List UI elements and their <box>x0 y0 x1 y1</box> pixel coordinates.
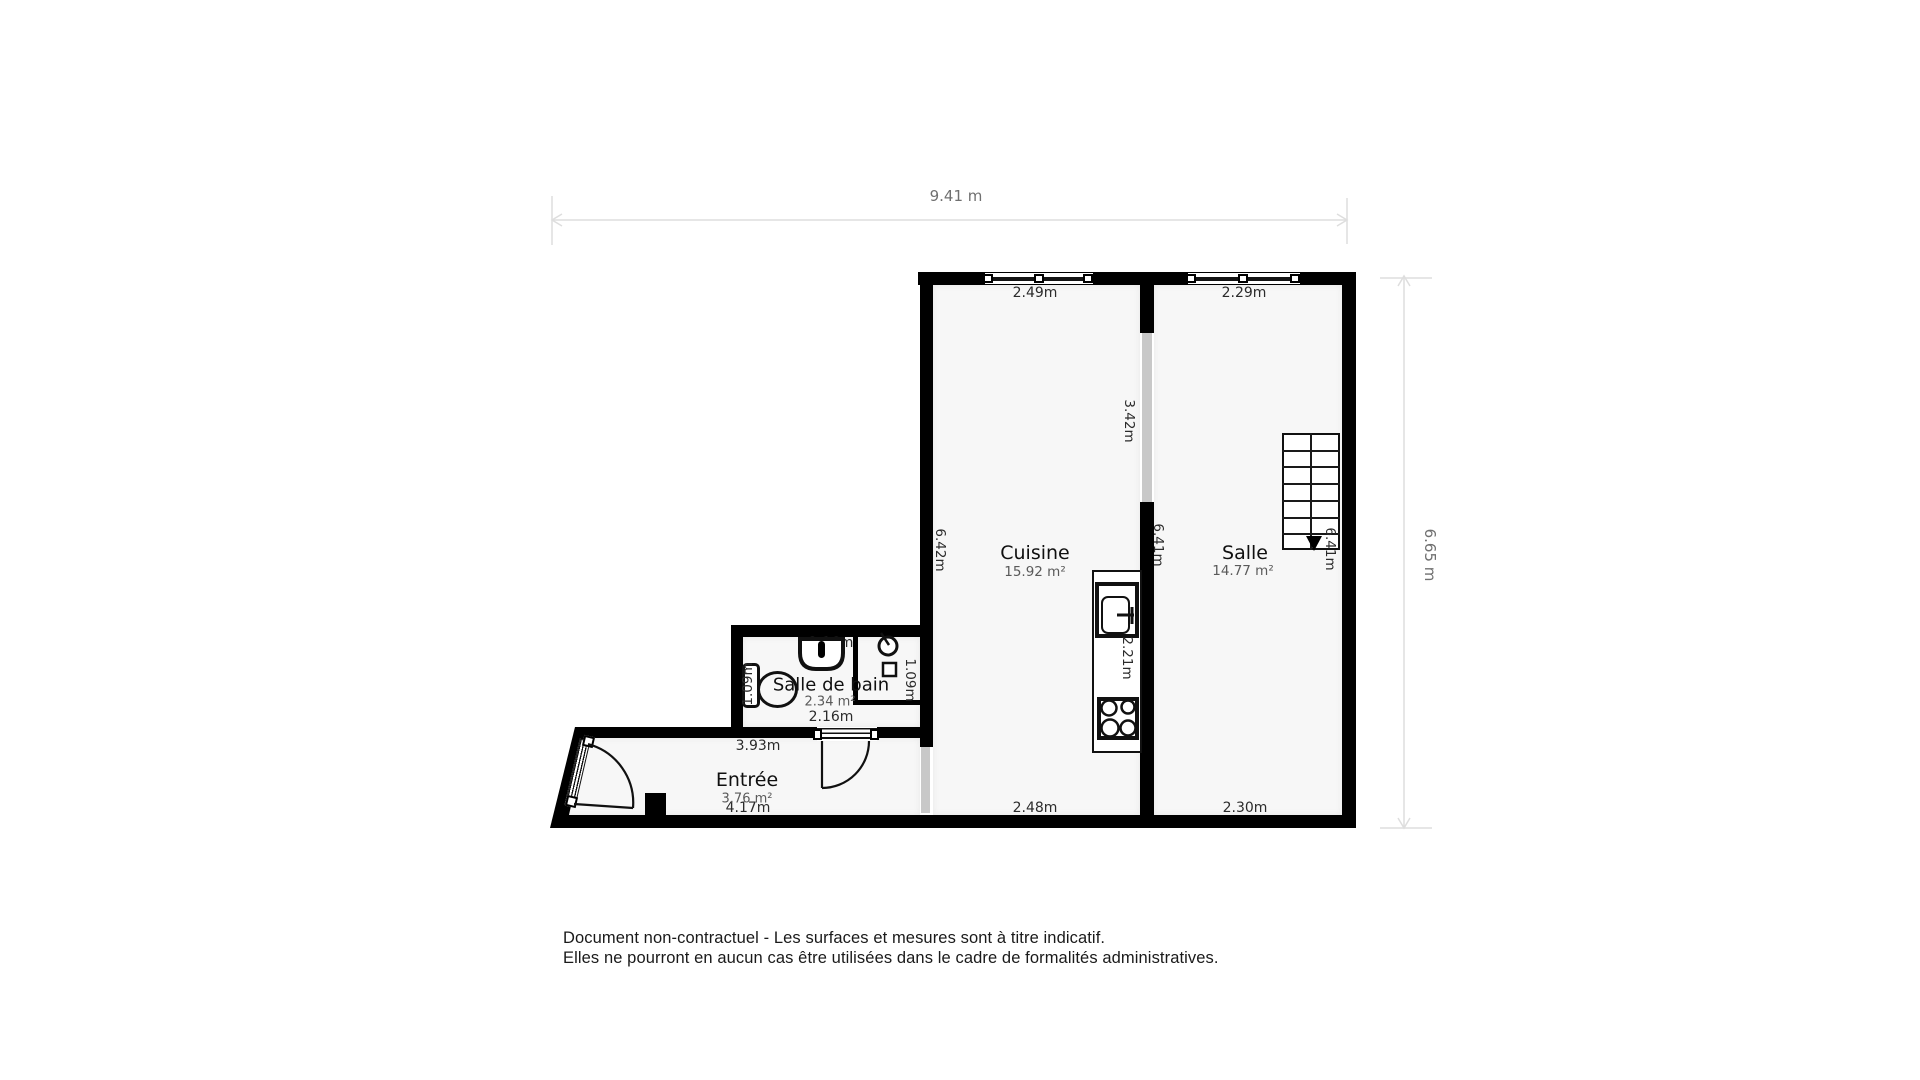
kitchen-sink-unit <box>1095 582 1139 638</box>
label-bath-width-top: 2.16m <box>809 635 854 651</box>
dim-right-label: 6.65 m <box>1421 529 1439 582</box>
room-area-entree: 3.76 m² <box>722 792 773 807</box>
wall-pillar <box>645 793 666 815</box>
door-threshold-bath <box>817 728 877 741</box>
window-mullion <box>983 274 993 283</box>
window-mullion <box>1238 274 1248 283</box>
door-jamb <box>813 729 822 740</box>
stair-direction-arrow <box>1306 536 1322 551</box>
label-counter: 2.21m <box>1119 636 1135 679</box>
label-cuisine-left-wall: 6.42m <box>932 528 948 571</box>
label-salle-bottom: 2.30m <box>1223 800 1268 816</box>
room-label-cuisine: Cuisine <box>1000 542 1070 564</box>
floor-plan-canvas: 9.41 m 6.65 m 2.49m 2.29m 6.42m 3.42m 6.… <box>0 0 1920 1080</box>
label-window-salle: 2.29m <box>1222 285 1267 301</box>
wall-bottom <box>563 815 1356 828</box>
footer-disclaimer-line1: Document non-contractuel - Les surfaces … <box>563 929 1105 948</box>
wall-cuisine-salle-upper <box>1140 285 1154 333</box>
stair-center-line <box>1310 433 1312 550</box>
room-area-salle: 14.77 m² <box>1212 563 1274 579</box>
kitchen-stove <box>1097 697 1139 740</box>
dim-top-label: 9.41 m <box>930 187 983 205</box>
window-mullion <box>1034 274 1044 283</box>
wall-right <box>1342 272 1356 828</box>
wall-entree-top-left <box>582 727 817 738</box>
room-area-cuisine: 15.92 m² <box>1004 564 1066 580</box>
opening-cuisine-salle <box>1141 333 1153 502</box>
room-area-salle-de-bain: 2.34 m² <box>805 695 856 710</box>
room-label-salle: Salle <box>1222 542 1268 564</box>
label-bath-depth-right: 1.09m <box>902 658 918 701</box>
label-cuisine-bottom: 2.48m <box>1013 800 1058 816</box>
label-window-cuisine: 2.49m <box>1013 285 1058 301</box>
label-opening-cuisine-salle: 3.42m <box>1121 399 1137 442</box>
label-bath-depth-left: 1.09m <box>740 662 756 705</box>
label-entree-top: 3.93m <box>736 738 781 754</box>
window-mullion <box>1290 274 1300 283</box>
room-label-entree: Entrée <box>716 769 778 791</box>
label-salle-left-wall: 6.41m <box>1150 523 1166 566</box>
room-label-salle-de-bain: Salle de bain <box>773 675 889 696</box>
wall-entree-top-right <box>877 727 920 738</box>
label-bath-width-bottom: 2.16m <box>809 709 854 725</box>
door-jamb <box>870 729 879 740</box>
window-mullion <box>1083 274 1093 283</box>
footer-disclaimer-line2: Elles ne pourront en aucun cas être util… <box>563 949 1219 968</box>
label-salle-right-wall: 6.41m <box>1322 527 1338 570</box>
wall-cuisine-left <box>920 272 933 747</box>
opening-entree-cuisine <box>920 747 931 813</box>
window-mullion <box>1186 274 1196 283</box>
